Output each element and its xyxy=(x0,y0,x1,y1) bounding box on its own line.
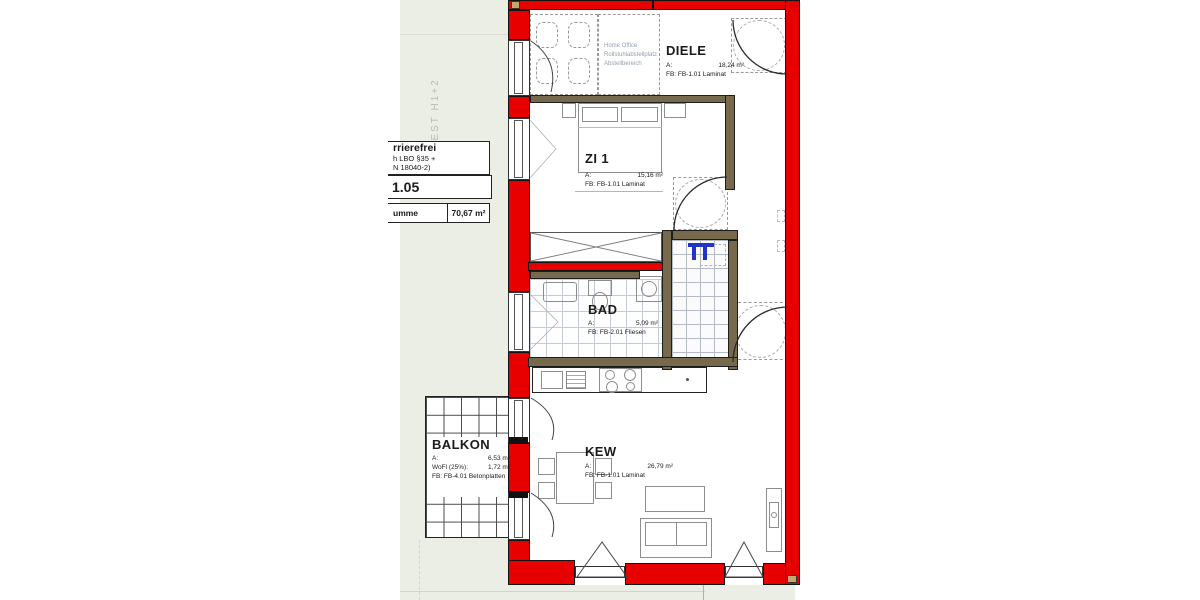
pillow xyxy=(621,107,658,122)
washing-machine-drum xyxy=(641,281,657,297)
home-office-note: Home Office Rollstuhlabstellplatz Abstel… xyxy=(604,42,660,69)
dining-chair xyxy=(538,482,555,499)
floor-finish: FB: FB-2.01 Fliesen xyxy=(588,329,658,338)
floor-finish: FB: FB-1.01 Laminat xyxy=(585,181,663,190)
room-name: KEW xyxy=(585,445,673,459)
sink-drainer xyxy=(566,371,586,389)
wall-niche-north xyxy=(672,230,738,240)
sum-label: umme xyxy=(388,204,448,222)
window-frame xyxy=(514,294,523,350)
pillow xyxy=(582,107,618,122)
water-connection-icon xyxy=(692,247,696,260)
burner xyxy=(624,369,636,381)
area-value: 15,16 m² xyxy=(637,172,663,181)
site-grid-line-v2 xyxy=(419,540,420,600)
title-line: rrierefrei xyxy=(393,143,489,154)
title-block-notes: rrierefrei h LBO §35 + N 18040-2) xyxy=(388,141,490,175)
area-value: 6,53 m² xyxy=(488,455,510,464)
wall-joint xyxy=(511,1,520,9)
unit-number-box: 1.05 xyxy=(388,175,492,199)
area-value: 5,09 m² xyxy=(636,320,658,329)
window-south xyxy=(725,566,763,578)
office-chair xyxy=(536,22,558,48)
floor-finish: FB: FB-1.01 Laminat xyxy=(585,472,673,481)
window-frame xyxy=(514,494,523,538)
office-chair xyxy=(536,58,558,84)
exterior-south-strip xyxy=(400,585,795,600)
unit-number: 1.05 xyxy=(392,179,419,195)
note-line: Rollstuhlabstellplatz xyxy=(604,51,660,60)
exterior-guide-line xyxy=(400,34,508,35)
wall-tick xyxy=(652,0,654,10)
wall-bedroom-east xyxy=(725,95,735,190)
wall-west-seg xyxy=(508,96,530,118)
area-label: A: xyxy=(585,463,591,472)
site-grid-line-h xyxy=(400,591,705,592)
wall-joint xyxy=(787,575,797,583)
room-label-zi1: ZI 1 A: 15,16 m² FB: FB-1.01 Laminat xyxy=(585,152,663,190)
burner xyxy=(626,382,635,391)
coffee-table xyxy=(645,486,705,512)
title-line: h LBO §35 + xyxy=(393,154,489,163)
wall-west-seg xyxy=(508,352,530,398)
room-label-balkon: BALKON A: 6,53 m² WoFl (25%): 1,72 m² FB… xyxy=(432,438,510,482)
area-value: 26,79 m² xyxy=(647,463,673,472)
wall-niche-west xyxy=(662,230,672,370)
wardrobe xyxy=(530,232,662,262)
rug-line xyxy=(575,191,663,192)
area-label: A: xyxy=(585,172,591,181)
area-label: A: xyxy=(432,455,438,464)
room-name: BALKON xyxy=(432,438,510,452)
window-frame xyxy=(514,400,523,441)
hall-door-circle xyxy=(735,305,786,358)
window-frame xyxy=(514,42,523,94)
burner xyxy=(605,370,615,380)
meter-box xyxy=(777,210,785,222)
wall-niche-east xyxy=(728,240,738,370)
nightstand xyxy=(562,103,576,118)
wall-west-seg xyxy=(508,443,530,492)
kitchen-sink xyxy=(541,371,563,389)
compass-label: WEST H1+2 xyxy=(430,32,446,152)
room-name: DIELE xyxy=(666,44,744,58)
window-frame xyxy=(514,120,523,178)
floor-finish: FB: FB-4.01 Betonplatten xyxy=(432,473,510,482)
tv-dot xyxy=(771,512,777,518)
room-name: BAD xyxy=(588,303,658,317)
wall-bath-south xyxy=(528,357,738,367)
bedroom-door-circle xyxy=(675,179,726,228)
room-name: ZI 1 xyxy=(585,152,663,166)
nightstand xyxy=(664,103,686,118)
wall-west-seg xyxy=(508,180,530,292)
wall-north xyxy=(508,0,800,10)
door-frame-tick xyxy=(509,437,528,443)
floor-finish: FB: FB-1.01 Laminat xyxy=(666,71,744,80)
area-value: 18,24 m² xyxy=(718,62,744,71)
washbasin xyxy=(543,282,577,302)
dining-chair xyxy=(595,482,612,499)
room-label-kew: KEW A: 26,79 m² FB: FB-1.01 Laminat xyxy=(585,445,673,481)
wall-bedroom-north xyxy=(530,95,735,103)
wall-west-seg xyxy=(508,10,530,40)
room-label-diele: DIELE A: 18,24 m² FB: FB-1.01 Laminat xyxy=(666,44,744,80)
office-chair xyxy=(568,58,590,84)
burner xyxy=(606,381,618,393)
sofa-divider xyxy=(676,522,677,546)
blanket-line xyxy=(578,127,662,128)
wall-south-seg xyxy=(625,563,725,585)
door-frame-tick xyxy=(509,492,528,498)
wofl-label: WoFl (25%): xyxy=(432,464,468,473)
room-label-bad: BAD A: 5,09 m² FB: FB-2.01 Fliesen xyxy=(588,303,658,338)
window-south xyxy=(575,566,625,578)
wall-east xyxy=(785,0,800,585)
floor-plan: WEST H1+2 xyxy=(0,0,1200,600)
note-line: Home Office xyxy=(604,42,660,51)
water-connection-icon xyxy=(703,247,707,260)
area-label: A: xyxy=(666,62,672,71)
counter-dot xyxy=(686,378,689,381)
site-grid-line-v xyxy=(703,585,704,600)
meter-box xyxy=(777,240,785,252)
area-sum-box: umme 70,67 m² xyxy=(388,203,490,223)
dining-chair xyxy=(538,458,555,475)
wall-bath-north xyxy=(530,271,640,279)
wall-south-seg xyxy=(508,560,575,585)
title-line: N 18040-2) xyxy=(393,163,489,172)
wall-hall-divider xyxy=(528,262,664,271)
area-label: A: xyxy=(588,320,594,329)
note-line: Abstellbereich xyxy=(604,60,660,69)
wofl-value: 1,72 m² xyxy=(488,464,510,473)
office-chair xyxy=(568,22,590,48)
sum-value: 70,67 m² xyxy=(448,204,489,222)
